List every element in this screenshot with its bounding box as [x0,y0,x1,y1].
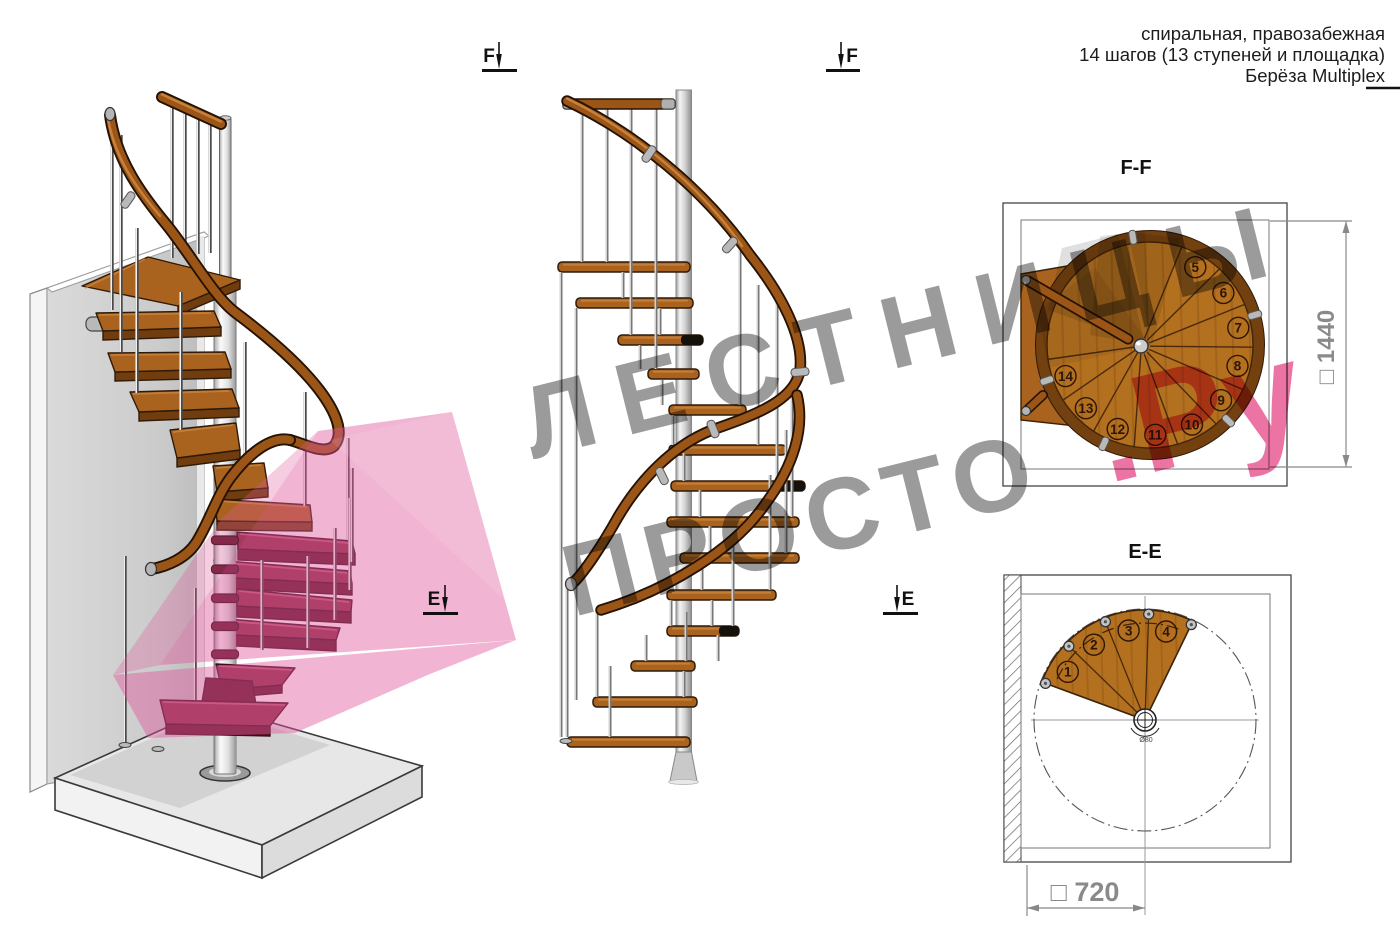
svg-text:F: F [846,46,858,67]
svg-text:F: F [483,46,495,67]
svg-text:14: 14 [1058,369,1074,384]
svg-text:E: E [428,589,441,610]
svg-text:4: 4 [1162,624,1170,639]
svg-text:14 шагов (13 ступеней и площад: 14 шагов (13 ступеней и площадка) [1079,44,1385,65]
svg-text:1: 1 [1064,665,1072,680]
svg-text:3: 3 [1125,623,1133,638]
svg-text:спиральная, правозабежная: спиральная, правозабежная [1141,23,1385,44]
svg-text:E: E [902,589,915,610]
svg-text:□ 720: □ 720 [1051,877,1120,907]
svg-text:E-E: E-E [1128,541,1161,563]
svg-text:Ø80: Ø80 [1139,737,1152,744]
svg-text:Берёза Multiplex: Берёза Multiplex [1245,65,1386,86]
svg-text:F-F: F-F [1120,157,1151,179]
svg-text:□ 1440: □ 1440 [1313,310,1340,385]
svg-text:2: 2 [1090,638,1098,653]
